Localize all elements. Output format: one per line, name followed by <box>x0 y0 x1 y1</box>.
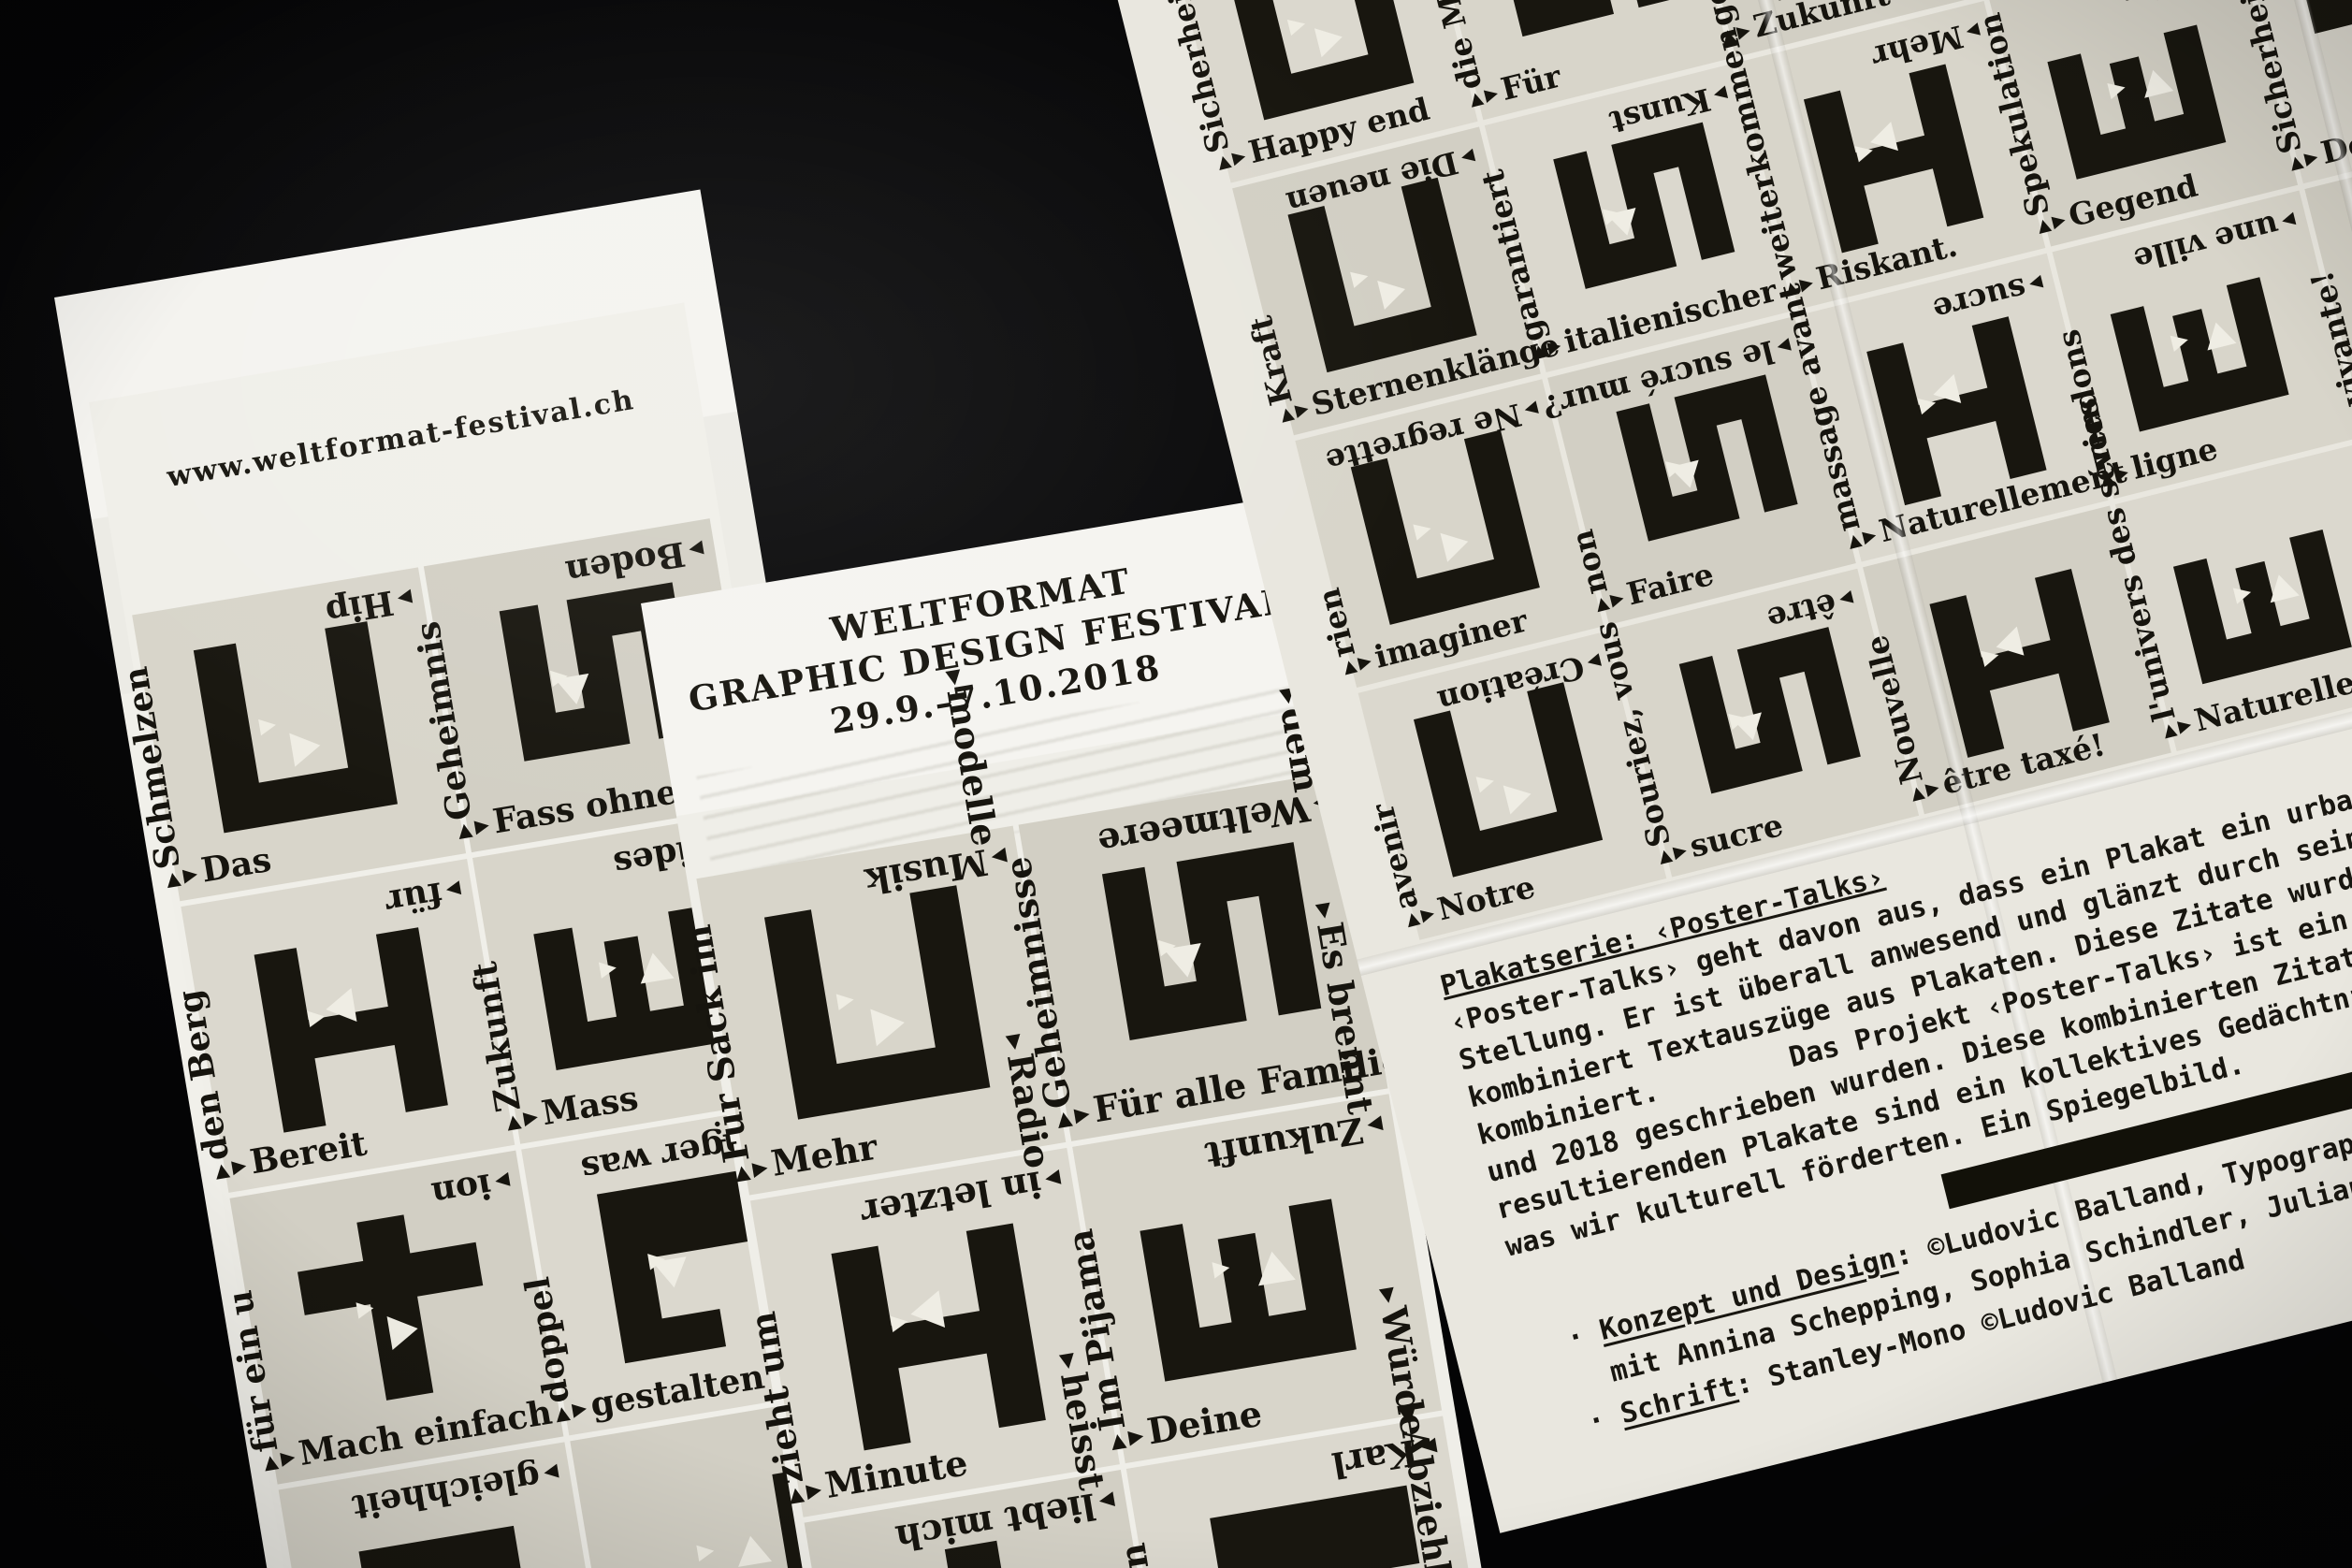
triangle-marker-icon: ▶ <box>1654 848 1677 865</box>
triangle-marker-icon: ▶ <box>1313 901 1338 920</box>
triangle-marker-icon: ▶ <box>2285 154 2307 172</box>
triangle-marker-icon: ▶ <box>257 1455 282 1473</box>
triangle-marker-icon: ▶ <box>1401 911 1424 929</box>
triangle-marker-icon: ▶ <box>1212 153 1235 171</box>
triangle-marker-icon: ▶ <box>1339 659 1361 676</box>
white-triangle-icon: ▶ <box>1157 932 1178 959</box>
pixel-letter-glyph <box>210 883 485 1163</box>
triangle-marker-icon: ▶ <box>2027 272 2045 295</box>
festival-url: www.weltformat-festival.ch <box>165 384 637 494</box>
triangle-marker-icon: ▶ <box>1465 91 1488 109</box>
triangle-marker-icon: ▶ <box>494 1169 512 1194</box>
envelope-word: ▶Hip <box>324 582 415 630</box>
pattern-cell: ▶Das▶Schmelzen▶Hip▶ <box>132 567 466 901</box>
triangle-marker-icon: ▶ <box>1057 1352 1082 1371</box>
triangle-marker-icon: ▶ <box>1843 532 1866 550</box>
envelope-word: ▶Das <box>181 843 274 891</box>
pattern-cell: ▶Mach einfach▶für ein u▶ion▶ <box>229 1151 563 1485</box>
triangle-marker-icon: ▶ <box>1906 785 1928 803</box>
triangle-marker-icon: ▶ <box>1366 1113 1385 1139</box>
triangle-marker-icon: ▶ <box>728 1165 753 1183</box>
triangle-marker-icon: ▶ <box>1590 596 1613 614</box>
white-triangle-icon: ▶ <box>1212 1255 1232 1282</box>
triangle-marker-icon: ▶ <box>1398 1408 1423 1427</box>
triangle-marker-icon: ▶ <box>1377 1285 1402 1304</box>
poster-word: ▶rien <box>1313 586 1364 678</box>
white-triangle-icon: ▶ <box>889 1308 909 1335</box>
pattern-cell: ▶Bereit▶den Berg▶für▶ <box>181 859 515 1193</box>
triangle-marker-icon: ▶ <box>2158 722 2181 740</box>
triangle-marker-icon: ▶ <box>444 878 462 903</box>
triangle-marker-icon: ▶ <box>688 538 705 562</box>
pattern-cell: ▶Deine▶Im Pijama▶Zukunft▶Es brennt▶ <box>1072 1094 1442 1463</box>
triangle-marker-icon: ▶ <box>1044 1168 1063 1193</box>
triangle-marker-icon: ▶ <box>781 1487 806 1505</box>
triangle-marker-icon: ▶ <box>943 668 968 687</box>
triangle-marker-icon: ▶ <box>2033 217 2055 235</box>
triangle-marker-icon: ▶ <box>548 1405 573 1423</box>
triangle-marker-icon: ▶ <box>1050 1111 1075 1129</box>
envelope-word: ▶ion <box>429 1165 513 1211</box>
triangle-marker-icon: ▶ <box>1275 406 1298 424</box>
photo-of-weltformat-poster-set: www.weltformat-festival.ch ▶Das▶Schmelze… <box>0 0 2352 1568</box>
triangle-marker-icon: ▶ <box>396 587 414 611</box>
triangle-marker-icon: ▶ <box>543 1461 560 1486</box>
pixel-letter-glyph <box>161 591 436 871</box>
triangle-marker-icon: ▶ <box>2280 210 2298 232</box>
triangle-marker-icon: ▶ <box>159 871 183 889</box>
triangle-marker-icon: ▶ <box>500 1114 524 1132</box>
white-triangle-icon: ▶ <box>835 986 856 1013</box>
triangle-marker-icon: ▶ <box>209 1163 233 1181</box>
triangle-marker-icon: ▶ <box>1459 146 1477 168</box>
pattern-cell: ▶Minute▶zieht um▶in letzter▶Radio▶ <box>750 1148 1120 1517</box>
triangle-marker-icon: ▶ <box>1097 1489 1116 1515</box>
triangle-marker-icon: ▶ <box>1837 588 1855 610</box>
triangle-marker-icon: ▶ <box>1004 1033 1029 1052</box>
triangle-marker-icon: ▶ <box>2348 407 2352 425</box>
envelope-word: ▶für <box>384 874 464 920</box>
triangle-marker-icon: ▶ <box>451 822 475 840</box>
pattern-cell: ▶imaginer▶rien▶Ne regrette▶ <box>1295 379 1604 688</box>
triangle-marker-icon: ▶ <box>1522 398 1540 420</box>
